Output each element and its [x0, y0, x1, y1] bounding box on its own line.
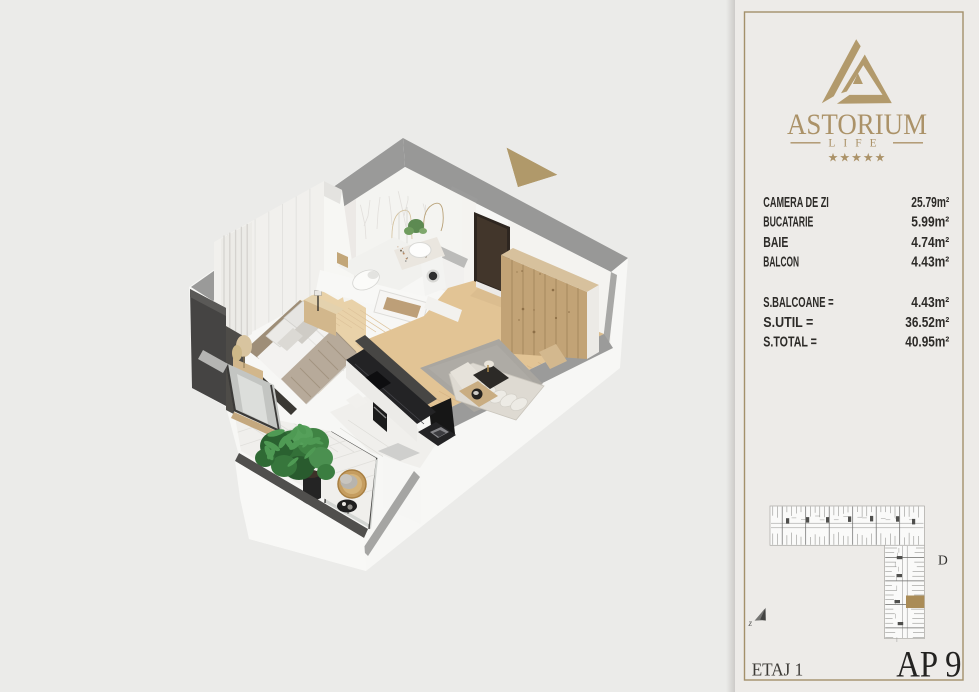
svg-text:40.95m²: 40.95m² [905, 335, 949, 351]
svg-text:5.99m²: 5.99m² [911, 215, 949, 231]
svg-text:36.52m²: 36.52m² [905, 315, 949, 331]
svg-text:D: D [938, 553, 948, 568]
svg-text:4.74m²: 4.74m² [911, 235, 949, 251]
svg-text:ASTORIUM: ASTORIUM [787, 108, 927, 141]
svg-text:S.TOTAL =: S.TOTAL = [763, 335, 817, 351]
svg-text:S.BALCOANE =: S.BALCOANE = [763, 295, 834, 311]
svg-text:BAIE: BAIE [763, 235, 788, 251]
svg-text:BALCON: BALCON [763, 254, 799, 270]
svg-text:AP 9: AP 9 [896, 643, 961, 684]
svg-text:4.43m²: 4.43m² [911, 295, 949, 311]
svg-text:LIFE: LIFE [828, 138, 884, 150]
svg-text:S.UTIL =: S.UTIL = [763, 315, 813, 331]
svg-text:25.79m²: 25.79m² [911, 195, 949, 211]
svg-text:z: z [748, 618, 753, 628]
svg-text:ETAJ 1: ETAJ 1 [752, 659, 804, 679]
svg-text:4.43m²: 4.43m² [911, 254, 949, 270]
svg-text:★★★★★: ★★★★★ [828, 151, 887, 165]
svg-text:CAMERA DE ZI: CAMERA DE ZI [763, 195, 829, 211]
svg-text:BUCATARIE: BUCATARIE [763, 215, 813, 231]
